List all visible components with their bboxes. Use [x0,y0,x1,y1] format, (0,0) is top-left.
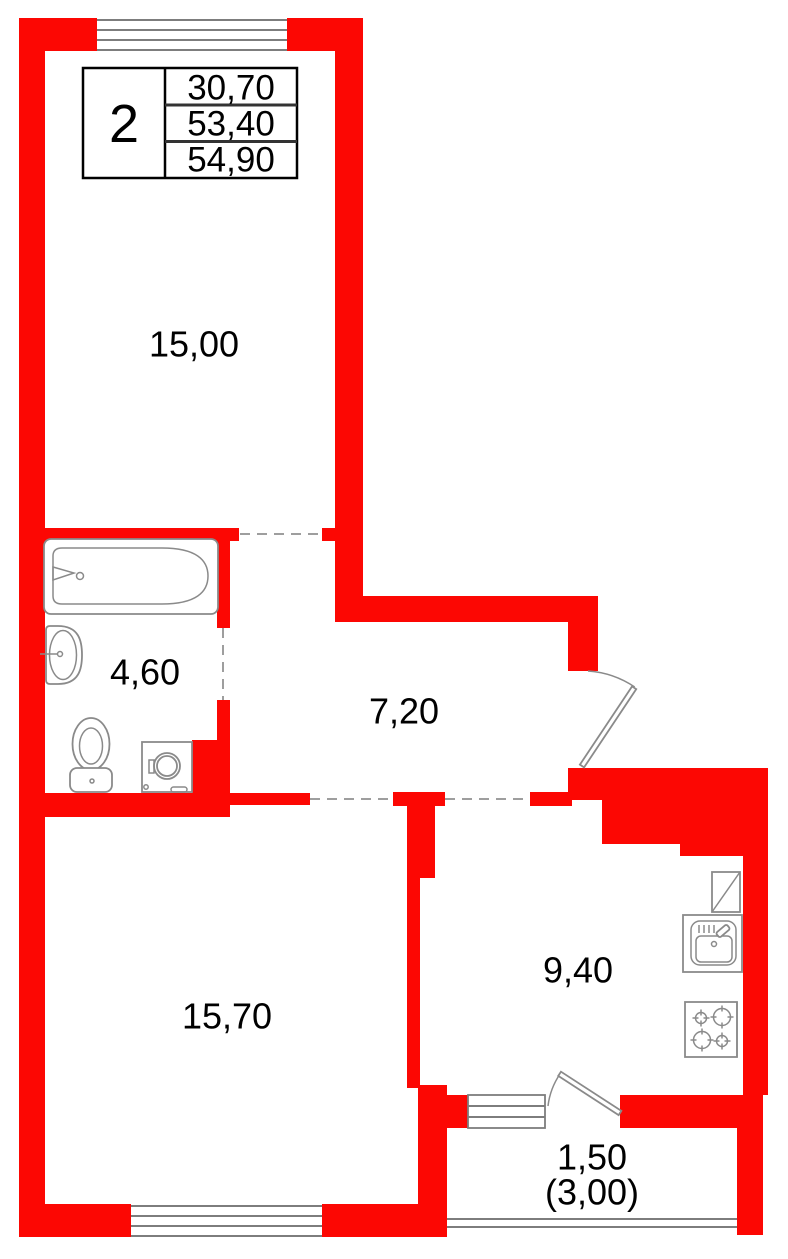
wall-washer-corner-block [192,740,230,798]
wall-bottom-left [19,1204,131,1237]
floor-plan-page: 2 30,70 53,40 54,90 15,00 4,60 7,20 15,7… [0,0,788,1259]
wash-basin [40,626,82,684]
wall-outer-left [19,18,45,1237]
window-livingroom-top [97,20,287,50]
table-total-area: 54,90 [187,141,275,180]
window-balcony-door-sidelight [468,1095,545,1128]
table-rooms-count: 2 [109,94,139,154]
label-kitchen-area: 9,40 [543,950,613,991]
wall-bathroom-right-lower [217,700,230,744]
refrigerator [712,872,740,912]
wall-kitchen-bottom-west [418,1095,468,1128]
wall-livingroom-right [335,18,363,622]
wall-stub-livingroom-opening [322,528,336,541]
balcony-door [548,1072,621,1115]
floor-plan-canvas: 2 30,70 53,40 54,90 15,00 4,60 7,20 15,7… [0,0,788,1259]
unit-info-table: 2 30,70 53,40 54,90 [83,68,297,180]
table-living-area: 30,70 [187,69,275,108]
balcony-door-swing-arc [548,1074,560,1106]
stove [685,1002,737,1057]
wall-bathroom-right-upper [217,538,230,628]
wall-balcony-right [737,1095,763,1235]
wall-kitchen-right [743,852,768,1095]
label-bedroom-area: 15,70 [182,996,272,1037]
wall-divider-upper [407,805,435,878]
wall-hallway-top [335,596,598,622]
entry-door [580,671,636,767]
entry-door-leaf [580,686,636,767]
window-bedroom-bottom [131,1206,322,1236]
toilet [70,718,112,792]
entry-door-swing-arc [588,671,635,687]
wall-kitchen-top-band2 [602,798,768,844]
wall-stub-hall-kitchen [530,792,572,806]
balcony-door-leaf [558,1072,621,1115]
kitchen-sink [683,915,742,972]
label-bathroom-area: 4,60 [110,652,180,693]
wall-entry-jamb [568,620,598,671]
openings [223,534,530,799]
label-living-room-area: 15,00 [149,324,239,365]
label-hallway-area: 7,20 [369,691,439,732]
wall-kitchen-top-band1 [568,768,768,800]
wall-stub-bathroom-east [228,793,310,805]
table-apartment-area: 53,40 [187,105,275,144]
wall-bottom-right [322,1204,420,1237]
bathtub [44,539,218,614]
washing-machine [142,742,192,792]
wall-divider-lower [407,878,420,1088]
walls [19,18,768,1237]
balcony-railing [447,1219,737,1227]
wall-bathroom-bottom [43,793,230,817]
wall-tcap-divider [393,792,445,806]
label-balcony-area-secondary: (3,00) [545,1172,639,1213]
